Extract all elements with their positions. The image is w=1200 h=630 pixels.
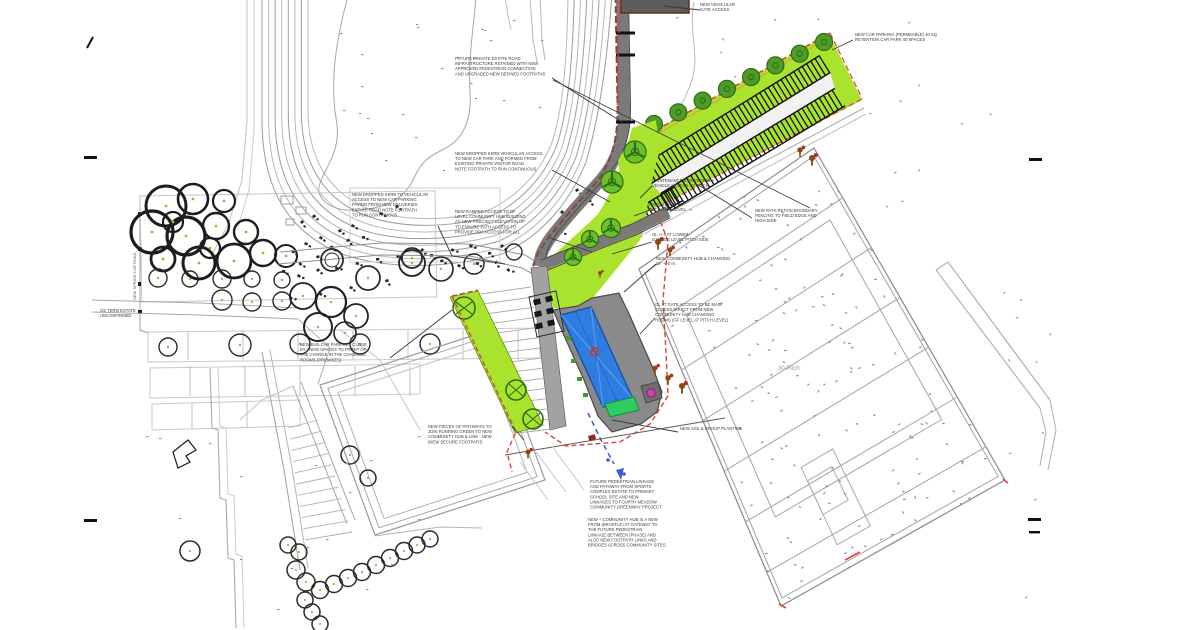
svg-text:30 Pitch: 30 Pitch	[778, 366, 800, 372]
svg-text:NEW SPRING LNR ROAD: NEW SPRING LNR ROAD	[132, 252, 137, 300]
svg-text:STEPS DOWN TOREC & SIDE LEVEL: STEPS DOWN TOREC & SIDE LEVEL	[648, 202, 687, 212]
svg-text:NEW RAMPED ACCESS TO GFLEVEL C: NEW RAMPED ACCESS TO GFLEVEL COMMUNITY H…	[455, 209, 526, 234]
svg-text:OS TERM ESTATEUNCONFIRMED: OS TERM ESTATEUNCONFIRMED	[100, 308, 136, 318]
svg-text:NEW + COMMUNITY HUB IS A NEWFR: NEW + COMMUNITY HUB IS A NEWFROM (BRUSTL…	[588, 517, 666, 548]
svg-text:NEW AGE & GROUP PLANTING: NEW AGE & GROUP PLANTING	[680, 426, 742, 431]
svg-text:MAINTENANCE & EMERGENCYVEHICLE: MAINTENANCE & EMERGENCYVEHICLE ACCESS TO…	[652, 178, 715, 188]
